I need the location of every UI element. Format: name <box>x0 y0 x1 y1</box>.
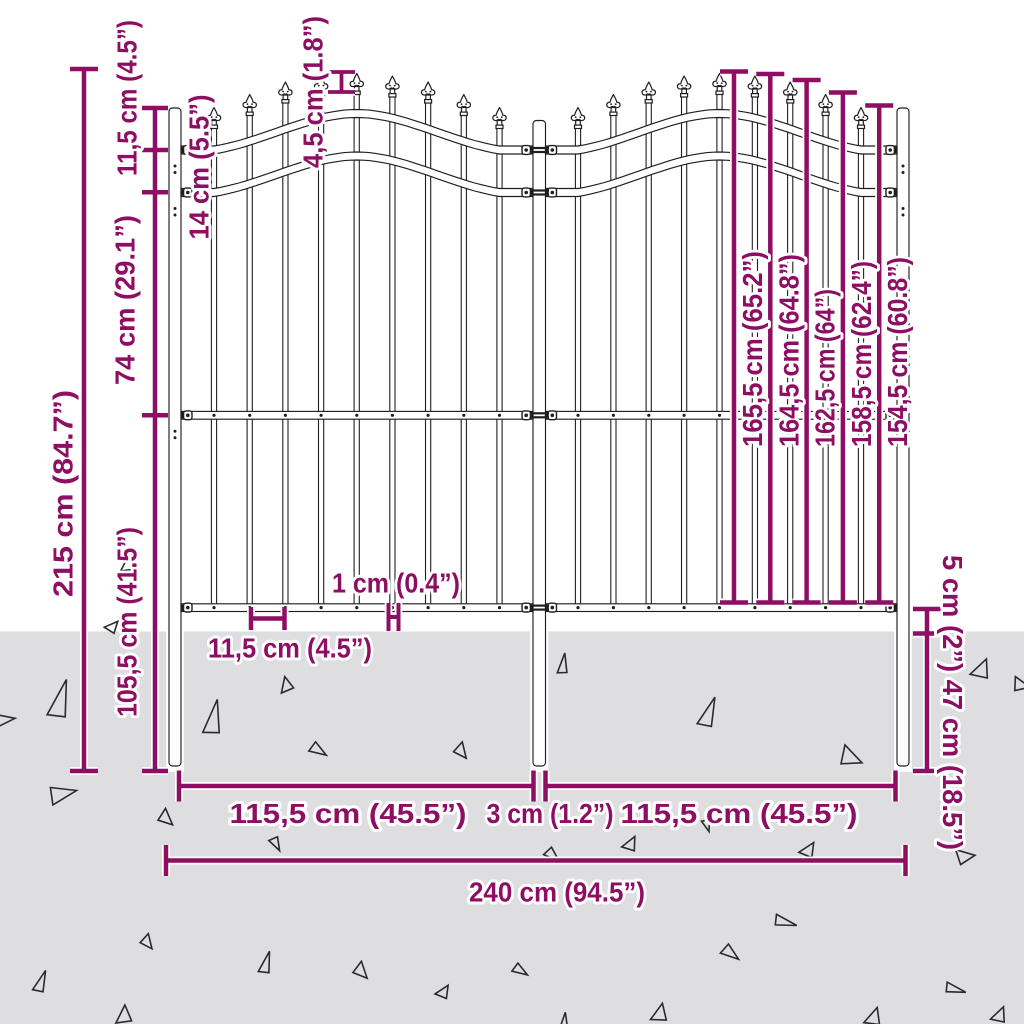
svg-text:115,5 cm (45.5”): 115,5 cm (45.5”) <box>230 798 467 829</box>
svg-text:1 cm (0.4”): 1 cm (0.4”) <box>332 568 460 599</box>
svg-text:11,5 cm (4.5”): 11,5 cm (4.5”) <box>112 20 143 176</box>
svg-text:240 cm (94.5”): 240 cm (94.5”) <box>469 877 645 908</box>
svg-text:105,5 cm (41.5”): 105,5 cm (41.5”) <box>112 527 143 717</box>
svg-text:158,5 cm (62.4”): 158,5 cm (62.4”) <box>846 261 877 447</box>
svg-text:11,5 cm (4.5”): 11,5 cm (4.5”) <box>208 633 372 664</box>
svg-text:5 cm (2”) 47 cm (18.5”): 5 cm (2”) 47 cm (18.5”) <box>937 555 968 850</box>
svg-text:3 cm (1.2”): 3 cm (1.2”) <box>487 798 614 829</box>
svg-text:74 cm (29.1”): 74 cm (29.1”) <box>110 215 141 385</box>
svg-text:4,5 cm (1.8”): 4,5 cm (1.8”) <box>298 16 329 168</box>
svg-text:162,5 cm (64”): 162,5 cm (64”) <box>810 289 841 447</box>
svg-text:215 cm (84.7”): 215 cm (84.7”) <box>48 390 79 597</box>
svg-text:164,5 cm (64.8”): 164,5 cm (64.8”) <box>773 254 804 447</box>
svg-text:165,5 cm (65.2”): 165,5 cm (65.2”) <box>737 251 768 447</box>
svg-text:154,5 cm (60.8”): 154,5 cm (60.8”) <box>882 257 913 447</box>
svg-text:14 cm (5.5”): 14 cm (5.5”) <box>184 95 215 240</box>
svg-text:115,5 cm (45.5”): 115,5 cm (45.5”) <box>621 798 858 829</box>
